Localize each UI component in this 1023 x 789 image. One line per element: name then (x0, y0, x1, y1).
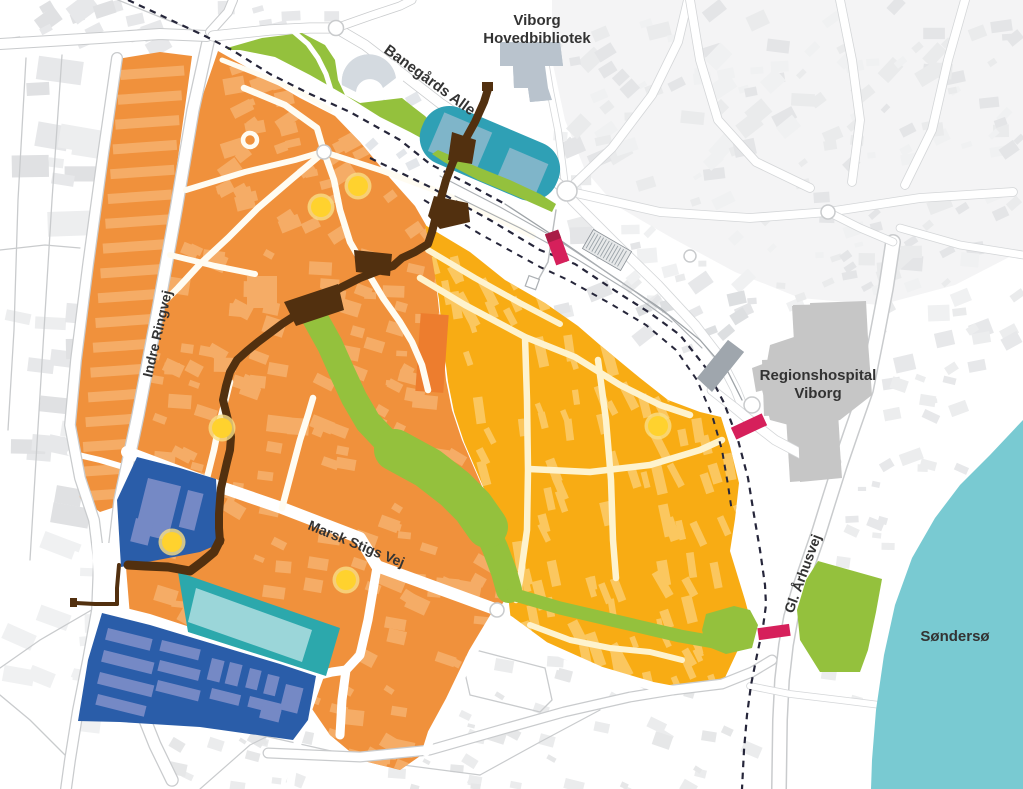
svg-text:Søndersø: Søndersø (920, 628, 990, 645)
svg-text:Viborg: Viborg (794, 385, 841, 402)
svg-text:Regionshospital: Regionshospital (760, 367, 877, 384)
svg-text:Hovedbibliotek: Hovedbibliotek (483, 30, 591, 47)
svg-text:Viborg: Viborg (513, 12, 560, 29)
